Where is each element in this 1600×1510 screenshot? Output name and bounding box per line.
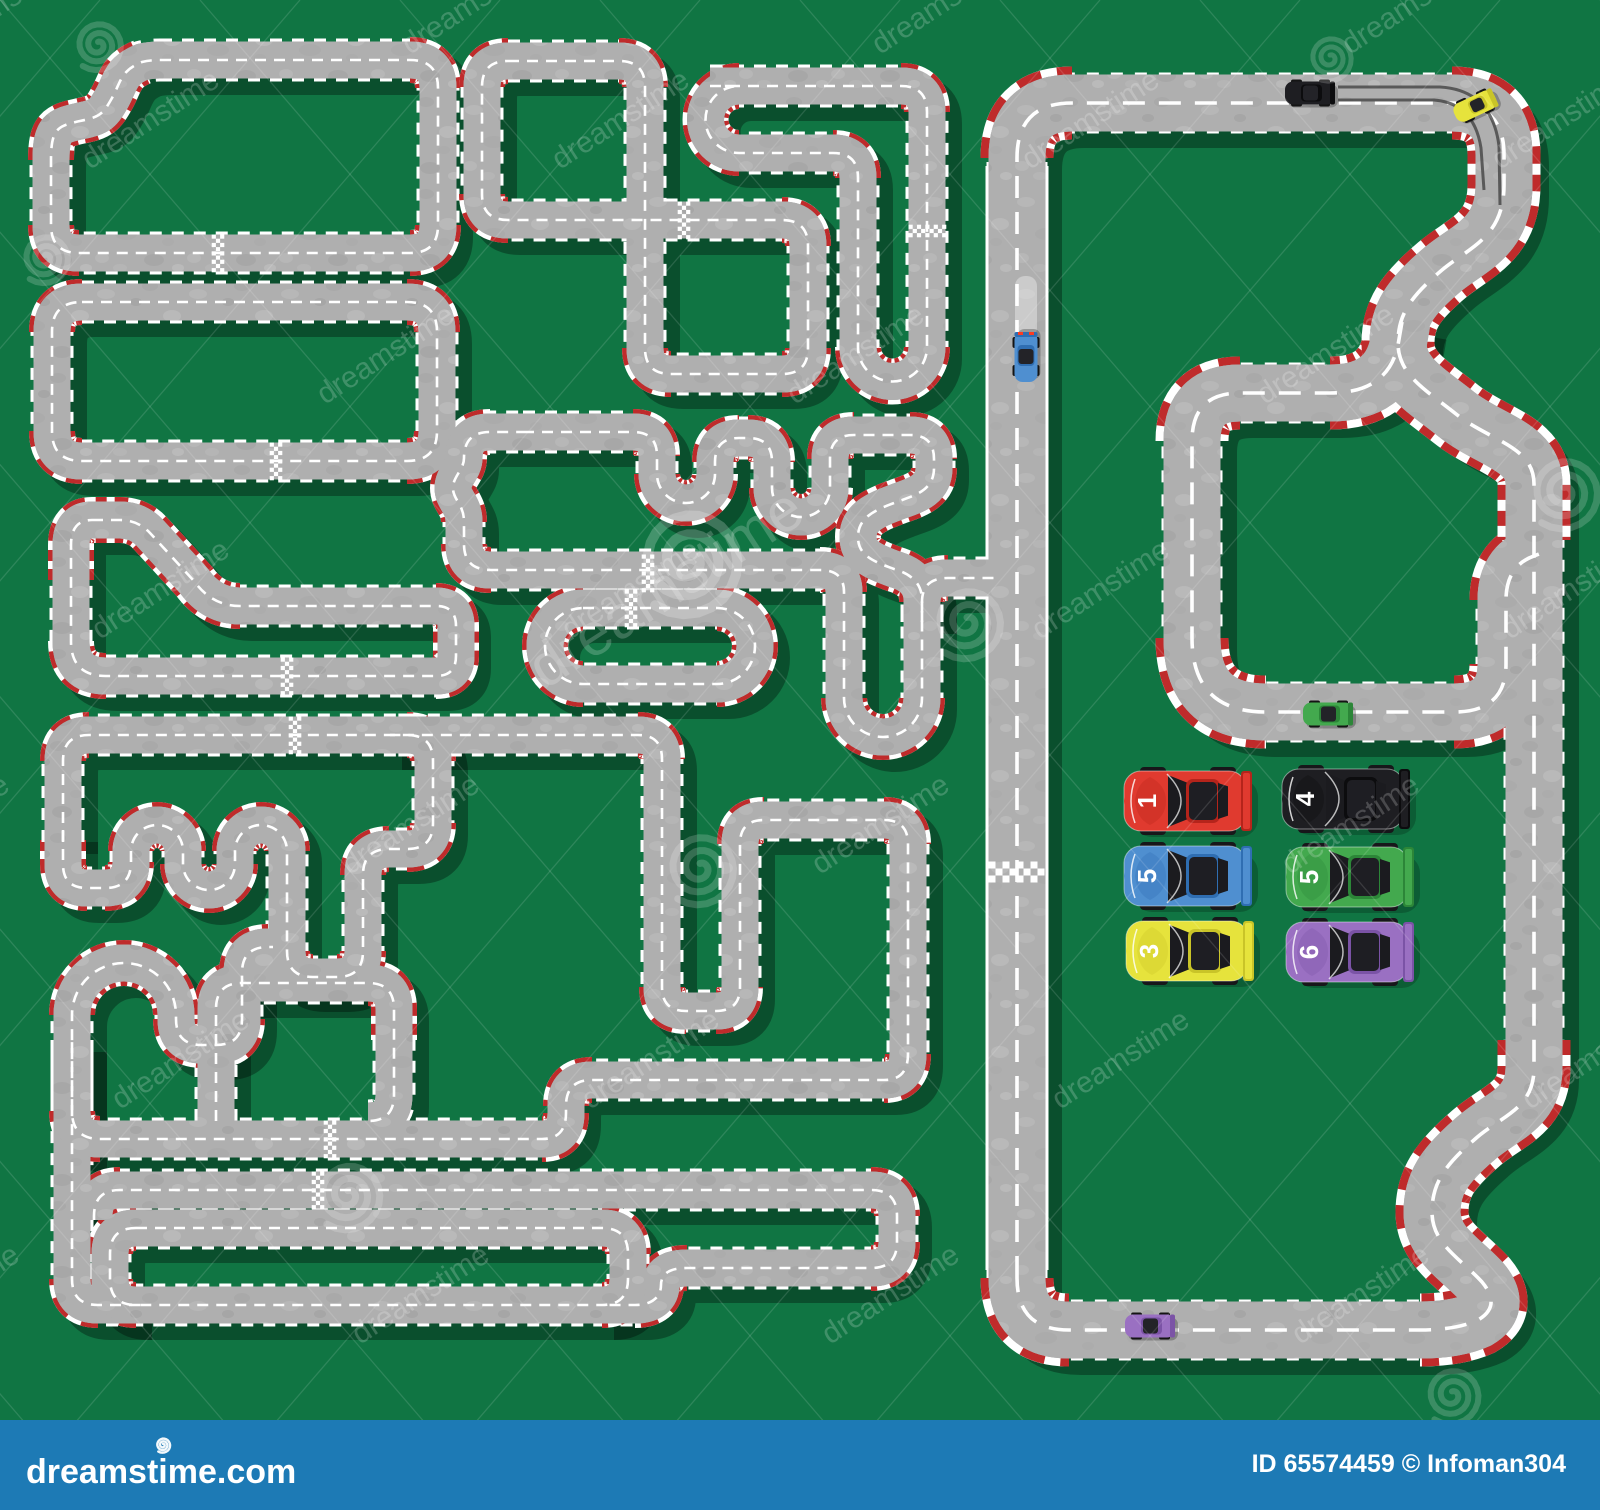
svg-text:dreamstime.com: dreamstime.com <box>26 1453 296 1491</box>
svg-text:5: 5 <box>1132 869 1162 883</box>
svg-text:ID 65574459 © Infoman304: ID 65574459 © Infoman304 <box>1252 1450 1567 1478</box>
svg-text:4: 4 <box>1290 791 1320 806</box>
svg-text:6: 6 <box>1294 945 1324 959</box>
svg-text:3: 3 <box>1134 944 1164 958</box>
svg-text:1: 1 <box>1132 794 1162 808</box>
